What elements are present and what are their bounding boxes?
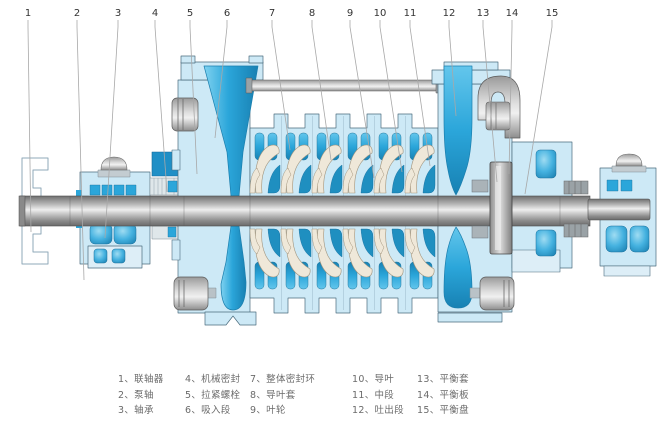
- bearing-ball: [606, 226, 627, 252]
- pump-cross-section-figure: 1 2 3 4 5 6 7 8 9 10 11 12 13 14 15 1、联轴…: [0, 0, 668, 436]
- bearing-ball: [536, 150, 556, 178]
- legend-item: 13、平衡套: [417, 372, 469, 388]
- callout-number-13: 13: [477, 8, 490, 19]
- bearing-ball: [114, 224, 136, 244]
- callout-number-1: 1: [25, 8, 31, 19]
- bearing-ball: [90, 224, 112, 244]
- bearing-ball: [94, 249, 107, 263]
- legend-item: 9、叶轮: [250, 403, 315, 419]
- multistage-pump-diagram: 1 2 3 4 5 6 7 8 9 10 11 12 13 14 15: [0, 0, 668, 436]
- legend-item: 11、中段: [352, 388, 404, 404]
- callout-number-2: 2: [74, 8, 80, 19]
- grease-cap-dome: [101, 157, 127, 170]
- legend-item: 6、吸入段: [185, 403, 240, 419]
- parts-legend: 1、联轴器 2、泵轴 3、轴承 4、机械密封 5、拉紧螺栓 6、吸入段 7、整体…: [0, 372, 668, 428]
- legend-item: 10、导叶: [352, 372, 404, 388]
- callout-number-6: 6: [224, 8, 230, 19]
- bearing-ball: [112, 249, 125, 263]
- legend-column-5: 13、平衡套 14、平衡板 15、平衡盘: [417, 372, 469, 419]
- legend-column-1: 1、联轴器 2、泵轴 3、轴承: [118, 372, 164, 419]
- callout-number-7: 7: [269, 8, 275, 19]
- legend-item: 14、平衡板: [417, 388, 469, 404]
- pump-shaft: [19, 196, 650, 226]
- callout-number-10: 10: [374, 8, 387, 19]
- legend-column-4: 10、导叶 11、中段 12、吐出段: [352, 372, 404, 419]
- tie-bolt: [246, 78, 442, 93]
- legend-item: 2、泵轴: [118, 388, 164, 404]
- discharge-foot: [438, 313, 502, 322]
- grease-cap-dome: [616, 154, 642, 166]
- legend-item: 4、机械密封: [185, 372, 240, 388]
- callout-numbers: 1 2 3 4 5 6 7 8 9 10 11 12 13 14 15: [25, 8, 559, 19]
- legend-item: 3、轴承: [118, 403, 164, 419]
- pump-casing-group: [22, 56, 656, 325]
- legend-item: 12、吐出段: [352, 403, 404, 419]
- callout-number-5: 5: [187, 8, 193, 19]
- callout-number-11: 11: [404, 8, 417, 19]
- suction-foot: [205, 312, 256, 325]
- callout-number-4: 4: [152, 8, 158, 19]
- bearing-ball: [536, 230, 556, 256]
- legend-item: 8、导叶套: [250, 388, 315, 404]
- callout-number-12: 12: [443, 8, 456, 19]
- legend-item: 1、联轴器: [118, 372, 164, 388]
- legend-item: 7、整体密封环: [250, 372, 315, 388]
- callout-number-14: 14: [506, 8, 519, 19]
- legend-column-2: 4、机械密封 5、拉紧螺栓 6、吸入段: [185, 372, 240, 419]
- balance-pipe-flange: [486, 102, 510, 130]
- bearing-ball: [630, 226, 649, 252]
- legend-item: 15、平衡盘: [417, 403, 469, 419]
- balance-sleeve-collar: [564, 224, 588, 237]
- callout-number-8: 8: [309, 8, 315, 19]
- balance-sleeve-collar: [564, 181, 588, 194]
- callout-number-15: 15: [546, 8, 559, 19]
- legend-item: 5、拉紧螺栓: [185, 388, 240, 404]
- callout-number-9: 9: [347, 8, 353, 19]
- legend-column-3: 7、整体密封环 8、导叶套 9、叶轮: [250, 372, 315, 419]
- callout-number-3: 3: [115, 8, 121, 19]
